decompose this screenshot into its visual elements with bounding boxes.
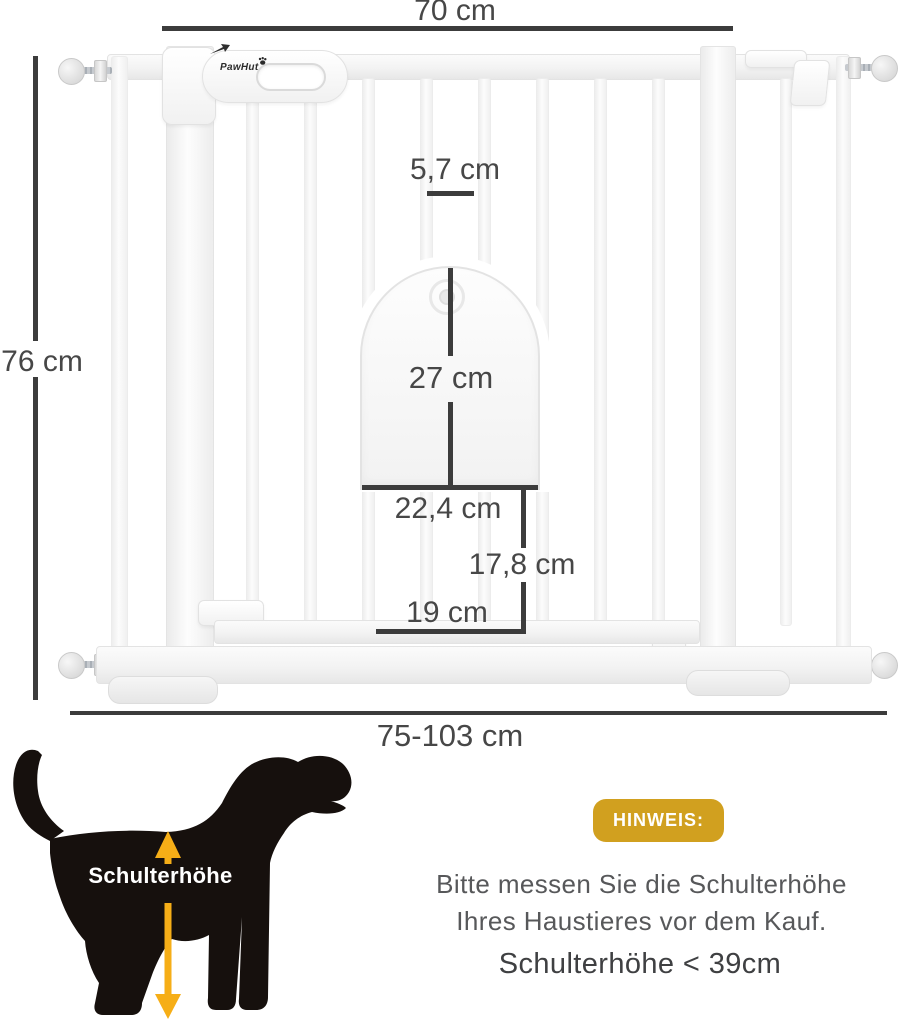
dim-label-lower-height: 17,8 cm [446,548,598,581]
dim-line-door-width [362,485,538,490]
dim-label-gate-height: 76 cm [0,345,92,378]
gate-extension-bar [780,78,792,626]
gate-bar [246,78,259,626]
dim-line-gate-height-lower [33,377,38,700]
notice-text-line2: Ihres Haustieres vor dem Kauf. [385,906,898,937]
dim-label-door-height: 27 cm [392,361,510,395]
hinge-clamp [790,60,831,106]
dim-line-lower-height-upper [521,490,526,548]
dim-line-gate-height-upper [33,56,38,341]
gate-left-pressure-tube [111,56,128,656]
shoulder-height-label: Schulterhöhe [78,863,243,889]
gate-bar [652,78,665,626]
dim-line-bar-spacing [427,191,474,196]
dim-line-door-height-lower [448,402,453,486]
gate-hinge-post [700,46,736,662]
dim-label-lower-width: 19 cm [374,596,520,629]
pressure-screw-top-left-icon [58,58,85,85]
dim-label-door-width: 22,4 cm [378,492,518,525]
brand-logo-text: PawHut [220,62,258,73]
pressure-screw-top-right-icon [871,55,898,82]
gate-left-foot [108,676,218,704]
notice-text-line1: Bitte messen Sie die Schulterhöhe [385,869,898,900]
gate-latch-post [166,46,214,662]
dim-line-lower-height-lower [521,582,526,634]
dim-line-lower-width [376,629,523,634]
dim-label-bar-spacing: 5,7 cm [392,153,518,186]
pressure-screw-bottom-left-icon [58,652,85,679]
pressure-screw-bottom-right-icon [871,652,898,679]
paw-icon [258,57,267,66]
gate-bar [594,78,607,626]
pressure-screw-nut-top-left [94,60,107,82]
notice-badge: HINWEIS: [593,799,724,842]
gate-right-pressure-tube [836,56,851,656]
pressure-screw-nut-top-right [848,57,861,79]
product-dimension-diagram: PawHut 70 cm 5,7 cm 76 cm 27 cm 22,4 cm … [0,0,898,1020]
dim-line-door-height-upper [448,268,453,356]
dim-line-adjustable-width [70,711,887,715]
brand-logo: PawHut [220,57,267,75]
gate-bar [304,78,317,626]
notice-requirement: Schulterhöhe < 39cm [430,948,850,981]
gate-right-foot [686,670,790,696]
dim-label-top-width: 70 cm [375,0,535,27]
dog-tail [13,750,64,841]
latch-direction-arrow-icon [210,44,230,55]
